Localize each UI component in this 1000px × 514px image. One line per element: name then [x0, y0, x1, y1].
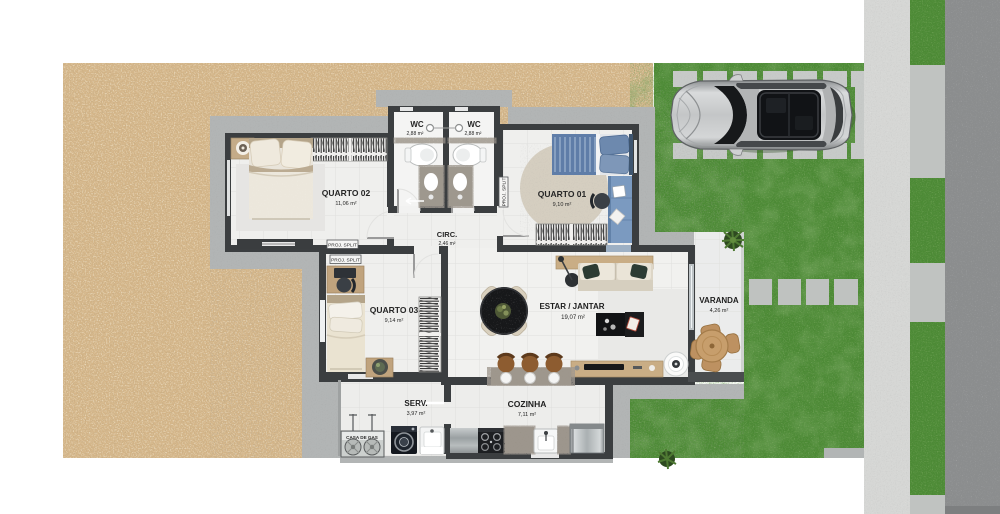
svg-text:19,07 m²: 19,07 m² — [561, 315, 585, 321]
svg-text:PROJ. SPLIT: PROJ. SPLIT — [328, 243, 357, 249]
svg-text:PROJ. SPLIT: PROJ. SPLIT — [331, 258, 360, 264]
svg-text:11,06 m²: 11,06 m² — [335, 201, 356, 207]
svg-text:4,26 m²: 4,26 m² — [710, 308, 729, 314]
svg-text:WC: WC — [410, 120, 424, 129]
svg-text:WC: WC — [467, 120, 481, 129]
svg-text:7,11 m²: 7,11 m² — [518, 412, 536, 418]
svg-text:2,46 m²: 2,46 m² — [439, 241, 456, 247]
svg-text:CASA DE GAS: CASA DE GAS — [346, 435, 378, 440]
svg-text:QUARTO 02: QUARTO 02 — [322, 188, 371, 198]
svg-text:VARANDA: VARANDA — [699, 296, 739, 305]
svg-text:COZINHA: COZINHA — [508, 399, 547, 409]
svg-text:QUARTO 03: QUARTO 03 — [370, 305, 419, 315]
svg-text:CIRC.: CIRC. — [437, 230, 457, 239]
svg-text:PROJ. SPLIT: PROJ. SPLIT — [502, 178, 508, 207]
svg-text:2,88 m²: 2,88 m² — [465, 131, 482, 137]
svg-text:2,88 m²: 2,88 m² — [407, 131, 424, 137]
svg-text:3,97 m²: 3,97 m² — [407, 411, 426, 417]
svg-text:ESTAR / JANTAR: ESTAR / JANTAR — [539, 302, 604, 311]
svg-text:9,10 m²: 9,10 m² — [553, 202, 572, 208]
svg-text:SERV.: SERV. — [404, 399, 427, 408]
svg-text:QUARTO 01: QUARTO 01 — [538, 189, 587, 199]
svg-text:9,14 m²: 9,14 m² — [385, 318, 404, 324]
